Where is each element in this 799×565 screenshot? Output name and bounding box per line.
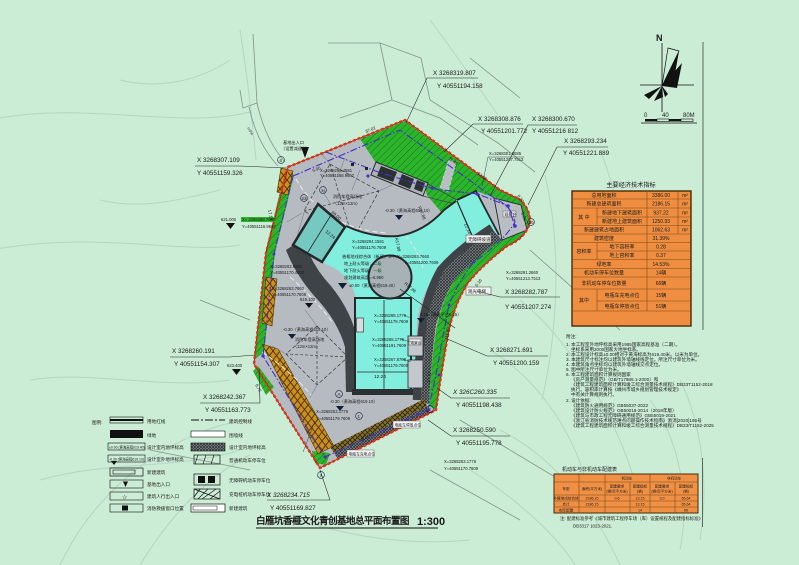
svg-text:X=3268253.1776: X=3268253.1776 — [316, 409, 349, 414]
svg-text:937.22: 937.22 — [653, 211, 669, 217]
svg-text:基地出入口: 基地出入口 — [283, 139, 304, 146]
svg-text:车型: 车型 — [562, 486, 570, 491]
svg-text:绿地: 绿地 — [147, 432, 157, 438]
svg-text:31.39%: 31.39% — [653, 236, 671, 242]
svg-text:Y 40551195.778: Y 40551195.778 — [456, 440, 502, 447]
svg-text:观光电梯: 观光电梯 — [468, 288, 486, 295]
svg-text:14辆: 14辆 — [656, 270, 667, 277]
svg-text:Y=40551200.7609: Y=40551200.7609 — [404, 260, 439, 265]
svg-text:Y 40551221.889: Y 40551221.889 — [563, 150, 610, 157]
svg-text:Y 40551207.274: Y 40551207.274 — [505, 304, 552, 311]
svg-text:-0.30（黄海高程619.10）: -0.30（黄海高程619.10） — [330, 398, 377, 405]
svg-text:〈12m×12m〉: 〈12m×12m〉 — [293, 344, 320, 349]
svg-text:X=3268253.1776: X=3268253.1776 — [444, 459, 477, 464]
svg-text:新建建筑: 新建建筑 — [147, 469, 166, 476]
svg-text:充电桩机动车停车位: 充电桩机动车停车位 — [229, 491, 271, 498]
svg-text:图例:: 图例: — [92, 419, 102, 426]
svg-text:配建指标: 配建指标 — [633, 484, 648, 489]
svg-text:-0.30 (黄海高程619.10): -0.30 (黄海高程619.10) — [109, 457, 144, 462]
svg-text:Y=40551179.7609: Y=40551179.7609 — [374, 319, 409, 324]
svg-text:地上容积率: 地上容积率 — [609, 252, 634, 259]
svg-text:主要经济技术指标: 主要经济技术指标 — [606, 181, 656, 189]
svg-text:66: 66 — [684, 509, 688, 513]
svg-text:中有关计算规则执行。: 中有关计算规则执行。 — [571, 391, 617, 398]
svg-text:12.24: 12.24 — [374, 374, 386, 380]
svg-text:X 3268319.807: X 3268319.807 — [433, 70, 476, 77]
svg-text:X 3268282.787: X 3268282.787 — [505, 289, 548, 296]
svg-text:机动车停车位数量: 机动车停车位数量 — [584, 270, 624, 277]
svg-text:配建要求: 配建要求 — [655, 484, 670, 489]
svg-text:Y=40551116.9667: Y=40551116.9667 — [242, 224, 276, 229]
svg-text:其 中: 其 中 — [578, 214, 589, 221]
svg-text:Y=40551168.9667: Y=40551168.9667 — [320, 173, 355, 178]
svg-text:Y 40551194.158: Y 40551194.158 — [437, 83, 483, 90]
svg-text:Y=40551191.7609: Y=40551191.7609 — [372, 343, 407, 348]
svg-text:X=3268263.9191: X=3268263.9191 — [270, 264, 303, 269]
svg-text:±0.00 (黄海高程619.40): ±0.00 (黄海高程619.40) — [109, 445, 145, 450]
svg-text:2186.15: 2186.15 — [652, 202, 670, 208]
svg-text:X 3268300.670: X 3268300.670 — [532, 116, 575, 123]
svg-text:m²: m² — [682, 228, 688, 234]
svg-text:10: 10 — [529, 220, 535, 225]
svg-text:65.64: 65.64 — [682, 497, 691, 501]
svg-text:m²: m² — [682, 193, 688, 199]
svg-text:Y 40551200.159: Y 40551200.159 — [493, 360, 540, 367]
svg-text:Y 40551216 812: Y 40551216 812 — [532, 128, 579, 135]
svg-text:20.10: 20.10 — [426, 371, 432, 383]
svg-text:X 3268293.234: X 3268293.234 — [564, 138, 607, 145]
svg-text:容积率: 容积率 — [576, 248, 591, 255]
svg-text:X=3268268.1776: X=3268268.1776 — [374, 313, 407, 318]
svg-text:H: H — [322, 188, 325, 193]
svg-text:无障碍坡道: 无障碍坡道 — [468, 236, 491, 243]
svg-text:X 3268308.876: X 3268308.876 — [478, 116, 521, 123]
svg-text:A: A — [338, 392, 341, 397]
svg-text:X 3268234.715: X 3268234.715 — [266, 492, 310, 499]
svg-text:0.28: 0.28 — [656, 245, 666, 251]
svg-text:X 3268307.109: X 3268307.109 — [197, 157, 240, 164]
svg-text:普通机动车停车位: 普通机动车停车位 — [229, 457, 266, 464]
svg-text:☆: ☆ — [122, 494, 127, 501]
svg-text:规划建筑高度=-6.990: 规划建筑高度=-6.990 — [344, 274, 384, 281]
svg-text:合计: 合计 — [562, 502, 570, 507]
svg-text:设计室内地坪标高: 设计室内地坪标高 — [147, 444, 184, 451]
svg-text:3.0: 3.0 — [660, 497, 665, 501]
svg-text:非机动车: 非机动车 — [667, 476, 682, 481]
svg-text:〈12m×12m〉: 〈12m×12m〉 — [333, 201, 360, 206]
svg-text:DB3317 1023-2021.: DB3317 1023-2021. — [573, 524, 612, 529]
svg-text:(辆): (辆) — [683, 489, 689, 494]
svg-text:4.15（观景平台5.25）: 4.15（观景平台5.25） — [420, 311, 461, 318]
svg-text:80M: 80M — [683, 113, 695, 119]
svg-text:Y=40551176.7609: Y=40551176.7609 — [352, 245, 387, 250]
svg-text:X 326C260.335: X 326C260.335 — [452, 389, 497, 396]
svg-text:Y=40551179.7609: Y=40551179.7609 — [374, 363, 409, 368]
svg-text:14.53%: 14.53% — [653, 262, 671, 268]
svg-text:1062.63: 1062.63 — [652, 228, 670, 234]
svg-text:电瓶车停放点位: 电瓶车停放点位 — [395, 423, 422, 428]
svg-text:《建筑工程建筑面积计算和竣工综合测量技术规程》DB33/T1: 《建筑工程建筑面积计算和竣工综合测量技术规程》DB33/T1152-2025 — [571, 422, 714, 429]
svg-text:面积(平方米): 面积(平方米) — [582, 486, 602, 491]
svg-text:-0.30（黄海高程619.10）: -0.30（黄海高程619.10） — [283, 326, 330, 333]
svg-text:Y=40551170.4953: Y=40551170.4953 — [270, 270, 305, 275]
svg-text:X=3268263.7660: X=3268263.7660 — [272, 286, 305, 291]
svg-text:Y=40551170.7609: Y=40551170.7609 — [444, 466, 479, 471]
svg-text:机动车与非机动车配建表: 机动车与非机动车配建表 — [562, 466, 617, 473]
svg-text:围墙线: 围墙线 — [229, 432, 243, 439]
svg-text:1:300: 1:300 — [417, 516, 445, 528]
svg-text:机动车: 机动车 — [622, 476, 633, 481]
svg-text:2186.15: 2186.15 — [586, 497, 599, 501]
svg-text:（设置减速带）: （设置减速带） — [281, 145, 310, 152]
svg-text:新建总建筑面积: 新建总建筑面积 — [586, 201, 621, 208]
svg-text:外榧地戍综合体: 外榧地戍综合体 — [553, 496, 579, 501]
svg-text:X=3268267.8708: X=3268267.8708 — [374, 357, 407, 362]
svg-text:N: N — [656, 33, 663, 43]
svg-text:13.15: 13.15 — [636, 497, 645, 501]
svg-text:Y=40551213.7513: Y=40551213.7513 — [506, 276, 541, 281]
svg-text:消防车登高场地: 消防车登高场地 — [295, 336, 325, 343]
svg-text:m²: m² — [682, 202, 688, 208]
svg-text:消防车登高场地: 消防车登高场地 — [333, 193, 363, 200]
svg-text:(辆/百平方米): (辆/百平方米) — [606, 489, 627, 494]
svg-text:621.000: 621.000 — [221, 217, 237, 222]
svg-text:Y 40551163.773: Y 40551163.773 — [205, 407, 251, 414]
svg-text:Y 40551198.438: Y 40551198.438 — [456, 402, 502, 409]
svg-text:附注:: 附注: — [566, 333, 576, 340]
svg-text:Y 40551201.772: Y 40551201.772 — [481, 128, 528, 135]
svg-text:X 3268250.590: X 3268250.590 — [453, 427, 496, 434]
svg-text:Y 40551154.307: Y 40551154.307 — [174, 361, 220, 368]
svg-text:X=3268268.1776: X=3268268.1776 — [372, 337, 405, 342]
svg-text:地上耐火等级：二级: 地上耐火等级：二级 — [344, 260, 383, 267]
svg-text:总用地面积: 总用地面积 — [591, 192, 616, 199]
svg-text:建筑人行出入口: 建筑人行出入口 — [147, 493, 180, 500]
svg-text:新建地上建筑面积: 新建地上建筑面积 — [602, 218, 642, 225]
svg-text:23: 23 — [302, 196, 308, 201]
svg-text:新建建筑占地面积: 新建建筑占地面积 — [584, 227, 624, 234]
svg-text:X=3268291.2660: X=3268291.2660 — [506, 270, 539, 275]
svg-text:无障碍机动车停车位: 无障碍机动车停车位 — [229, 477, 271, 484]
svg-text:2186.15: 2186.15 — [586, 503, 599, 507]
svg-text:Y 40551159.326: Y 40551159.326 — [197, 170, 243, 177]
svg-text:m²: m² — [682, 211, 688, 217]
svg-text:m²: m² — [682, 219, 688, 225]
svg-text:基地出入口: 基地出入口 — [147, 481, 170, 488]
svg-text:65.64: 65.64 — [682, 503, 691, 507]
svg-text:建筑密度: 建筑密度 — [594, 235, 614, 242]
svg-text:Y 40551169.827: Y 40551169.827 — [270, 505, 316, 512]
svg-text:(辆/百平方米): (辆/百平方米) — [651, 489, 672, 494]
svg-text:Y=40551207.7513: Y=40551207.7513 — [489, 157, 524, 162]
svg-text:电瓶车充电点位: 电瓶车充电点位 — [604, 292, 639, 299]
svg-text:0.6: 0.6 — [615, 497, 620, 501]
svg-text:白雁坑香榧文化青创基地总平面布置图: 白雁坑香榧文化青创基地总平面布置图 — [256, 515, 409, 527]
svg-text:建筑控制线: 建筑控制线 — [229, 418, 252, 425]
svg-text:15辆: 15辆 — [656, 292, 667, 299]
svg-text:电瓶车停放点位: 电瓶车停放点位 — [604, 303, 639, 310]
svg-text:619.100: 619.100 — [300, 297, 316, 302]
svg-text:配建指标: 配建指标 — [679, 484, 694, 489]
svg-text:新建建筑: 新建建筑 — [229, 505, 248, 512]
svg-text:地下容积率: 地下容积率 — [609, 244, 634, 251]
svg-text:3386.00: 3386.00 — [652, 193, 670, 199]
svg-text:X 3268242.367: X 3268242.367 — [203, 394, 246, 401]
svg-text:40: 40 — [662, 113, 669, 119]
svg-text:66辆: 66辆 — [656, 280, 667, 287]
svg-text:14: 14 — [638, 509, 642, 513]
svg-text:1250.93: 1250.93 — [652, 219, 670, 225]
svg-text:51辆: 51辆 — [656, 303, 667, 310]
svg-text:配建要求: 配建要求 — [610, 484, 625, 489]
svg-text:非机动车停车位数量: 非机动车停车位数量 — [581, 280, 626, 287]
svg-text:注: 配建标准参考《城市建筑工程停车场（库）设置规程及配建指: 注: 配建标准参考《城市建筑工程停车场（库）设置规程及配建指标标准》 — [560, 515, 703, 522]
svg-text:地下耐火等级：一级: 地下耐火等级：一级 — [344, 267, 383, 274]
svg-text:其中: 其中 — [579, 297, 589, 304]
svg-text:Y=40551179.7609: Y=40551179.7609 — [316, 416, 351, 421]
svg-text:0.37: 0.37 — [656, 253, 666, 259]
svg-text:绿地率: 绿地率 — [596, 261, 611, 268]
svg-text:观景台: 观景台 — [411, 340, 422, 345]
svg-text:电瓶车充电点位: 电瓶车充电点位 — [349, 452, 376, 457]
svg-text:设计室内地坪标高: 设计室内地坪标高 — [229, 444, 266, 451]
svg-text:X=3268301.6585: X=3268301.6585 — [489, 151, 522, 156]
svg-text:X=3268294.1581: X=3268294.1581 — [352, 239, 385, 244]
svg-text:(辆): (辆) — [637, 489, 643, 494]
svg-text:623.400: 623.400 — [227, 363, 243, 368]
svg-text:13.15: 13.15 — [636, 503, 645, 507]
svg-text:±0.00（黄海高程619.40）: ±0.00（黄海高程619.40） — [349, 282, 397, 289]
svg-text:香榧地戍综合体（新建，1F）X=3268283.7660: 香榧地戍综合体（新建，1F）X=3268283.7660 — [342, 253, 430, 260]
svg-text:新建地下建筑面积: 新建地下建筑面积 — [602, 210, 642, 217]
svg-text:用地红线: 用地红线 — [147, 418, 166, 425]
svg-text:消防救援窗口位置: 消防救援窗口位置 — [147, 505, 184, 512]
svg-text:设计室外地坪标高: 设计室外地坪标高 — [147, 456, 184, 463]
svg-text:实际配建: 实际配建 — [559, 508, 574, 513]
svg-text:X 3268260.191: X 3268260.191 — [172, 348, 215, 355]
svg-text:X 3268271.691: X 3268271.691 — [490, 347, 533, 354]
